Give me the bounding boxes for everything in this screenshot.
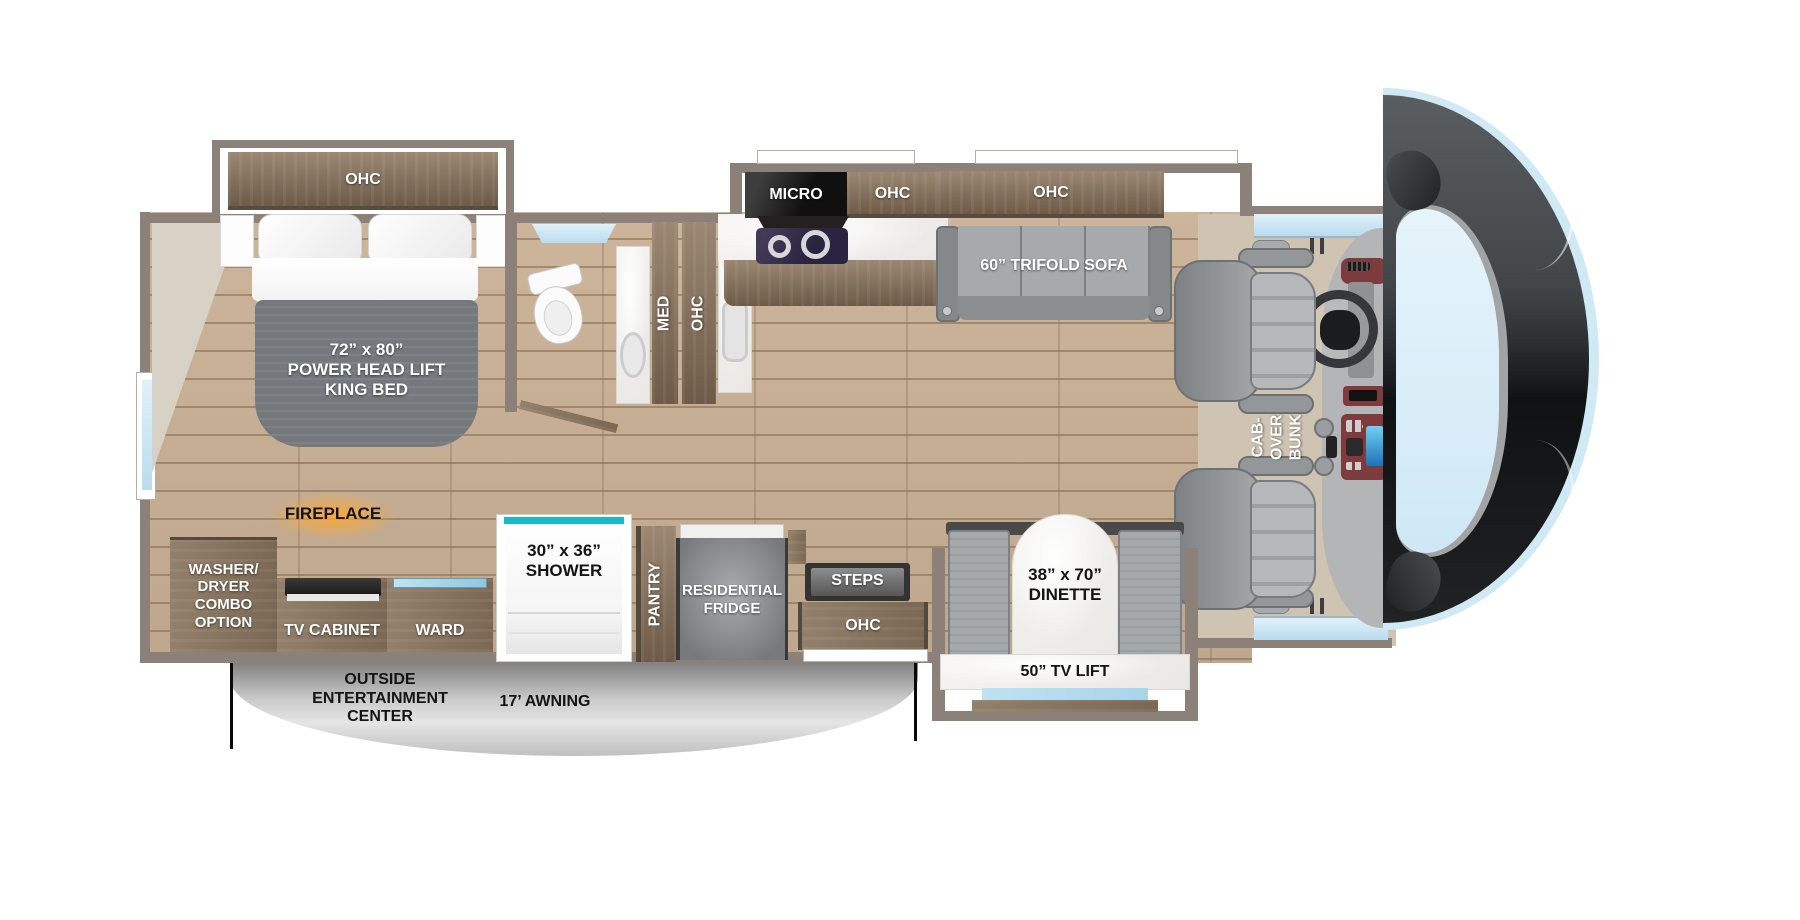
bedroom-ohc-label: OHC (228, 152, 498, 208)
cab-door-tick-top2 (1320, 238, 1324, 254)
bathroom-window (532, 224, 616, 243)
bedroom-window (142, 380, 152, 490)
bathroom-ohc-label: OHC (682, 222, 716, 404)
cab-over-bunk-label: CAB-OVER BUNK (1238, 380, 1318, 494)
dash-vent-grille (1346, 262, 1370, 271)
sofa-seat-front (958, 296, 1150, 320)
console-buttons (1346, 420, 1362, 432)
dinette-window-sill (972, 700, 1158, 712)
gear-column (1326, 436, 1337, 458)
radio-display (1349, 390, 1377, 401)
burner-left-icon (768, 235, 791, 258)
floorplan-canvas: OHC 72” x 80” POWER HEAD LIFT KING BED M… (0, 0, 1800, 920)
tv-lift-label: 50” TV LIFT (940, 654, 1190, 690)
fireplace-label: FIREPLACE (258, 500, 408, 528)
dinette-slideout-wall-bottom (932, 711, 1198, 721)
microwave-label: MICRO (745, 172, 847, 218)
entry-door-rail (803, 649, 928, 662)
shower-label: 30” x 36” SHOWER (500, 534, 628, 588)
awning-arm-right (914, 663, 917, 741)
door-ohc-label: OHC (798, 602, 928, 650)
shower-teal-edge (504, 517, 624, 524)
nightstand-left (220, 215, 254, 267)
shower-shelf-line (508, 612, 620, 614)
kitchen-base-cabinet (724, 260, 944, 306)
console-keypad (1346, 438, 1363, 456)
bathroom-sink-right (722, 300, 748, 362)
console-buttons2 (1346, 462, 1362, 470)
kitchen-ohc-left-label: OHC (847, 172, 938, 216)
sofa-label: 60” TRIFOLD SOFA (944, 244, 1164, 288)
king-bed-label: 72” x 80” POWER HEAD LIFT KING BED (255, 322, 478, 418)
shower-shelf-line2 (508, 632, 620, 634)
passenger-seat-cushion (1250, 480, 1316, 598)
kitchen-slide-rail-left (757, 150, 915, 164)
dinette-label: 38” x 70” DINETTE (1004, 556, 1126, 614)
bathroom-wall (505, 215, 517, 412)
burner-right-icon (801, 230, 830, 259)
dinette-bench-left (948, 530, 1010, 660)
bathroom-sink-left (620, 332, 646, 378)
dinette-slideout-wall-left (932, 548, 945, 721)
fireplace-insert-base (287, 594, 379, 601)
dinette-slideout-wall-right (1185, 548, 1198, 721)
console-screen (1366, 426, 1384, 466)
awning-arm-left (230, 663, 233, 749)
kitchen-ohc-right-label: OHC (938, 171, 1164, 216)
kitchen-slide-rail-right (975, 150, 1238, 164)
driver-seat-cushion (1250, 272, 1316, 390)
awning-label: 17’ AWNING (470, 688, 620, 716)
dinette-bench-right (1118, 530, 1182, 660)
cab-door-tick-bottom2 (1320, 598, 1324, 614)
pantry-label: PANTRY (636, 526, 676, 662)
outside-entertainment-label: OUTSIDE ENTERTAINMENT CENTER (290, 666, 470, 732)
tv-cabinet-label: TV CABINET (272, 614, 392, 648)
wall-step-cab (1240, 163, 1252, 216)
med-cabinet-label: MED (652, 222, 678, 404)
ward-label: WARD (387, 614, 493, 648)
washer-dryer-label: WASHER/ DRYER COMBO OPTION (170, 544, 277, 648)
sofa-knob-right (1154, 306, 1164, 316)
ward-glass-top (393, 578, 487, 588)
bathroom-vanity (616, 246, 650, 404)
fridge-label: RESIDENTIAL FRIDGE (676, 572, 788, 628)
sofa-knob-left (942, 306, 952, 316)
counter-end-cap (788, 530, 806, 564)
entry-steps-label: STEPS (805, 563, 910, 599)
steering-wheel-center (1320, 310, 1360, 350)
